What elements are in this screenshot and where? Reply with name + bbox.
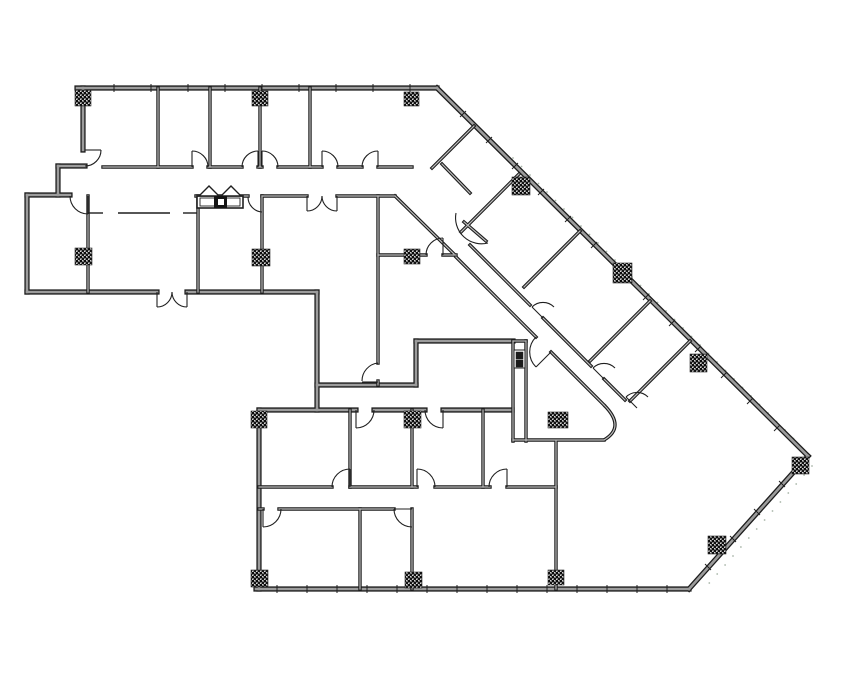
column-marker — [404, 249, 420, 264]
column-marker — [708, 536, 726, 554]
column-marker — [75, 90, 91, 106]
column-marker — [690, 354, 707, 372]
elevator-symbol — [514, 350, 525, 368]
column-marker — [405, 572, 422, 588]
floor-plan-canvas — [0, 0, 855, 678]
floor-plan-page — [0, 0, 855, 678]
column-marker — [404, 92, 419, 106]
column-marker — [251, 411, 267, 428]
column-marker — [613, 263, 632, 283]
column-marker — [512, 177, 530, 195]
column-marker — [404, 411, 421, 428]
column-marker — [252, 91, 268, 106]
column-marker — [792, 457, 809, 474]
column-marker — [548, 570, 564, 585]
column-marker — [251, 570, 268, 587]
column-marker — [252, 249, 270, 266]
column-marker — [75, 248, 92, 265]
column-marker — [548, 412, 568, 428]
